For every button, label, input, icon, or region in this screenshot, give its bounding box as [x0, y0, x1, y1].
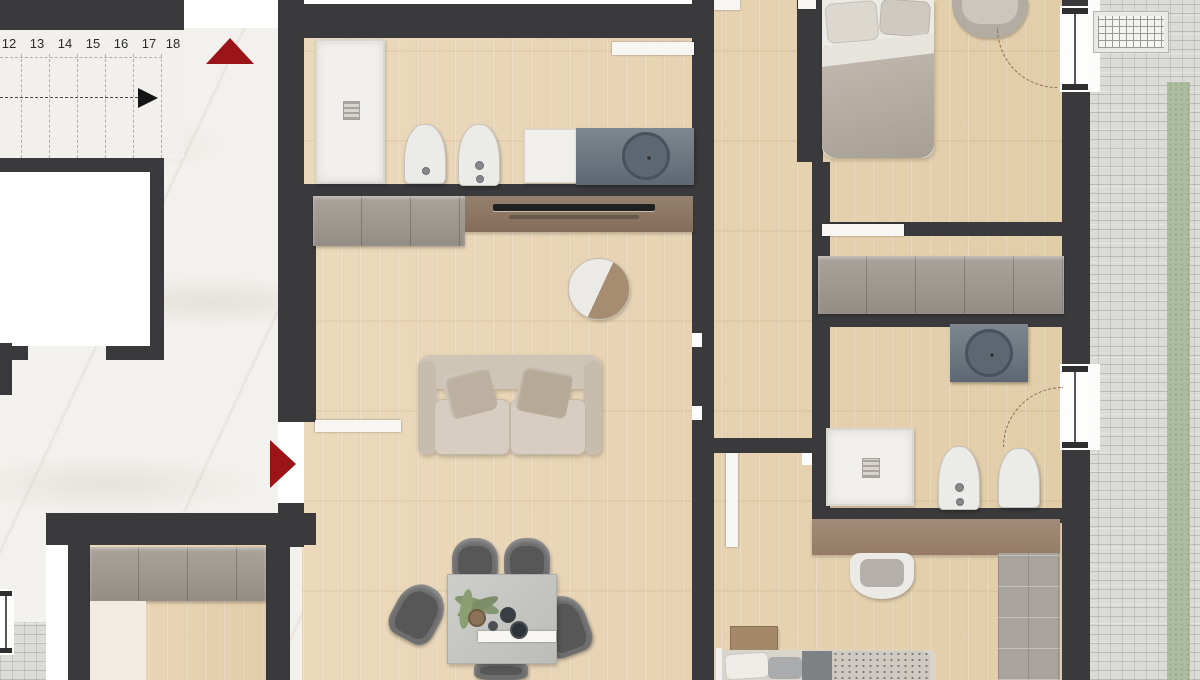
drain-dot [956, 498, 964, 506]
stair-tread-line [21, 54, 22, 158]
shower-drain [343, 101, 360, 120]
wall-top-left [0, 0, 184, 30]
bathroom-door-leaf [612, 42, 694, 55]
wall-apartment-top [278, 4, 714, 38]
bed-blanket-band [802, 651, 832, 680]
door-jamb-notch [692, 406, 702, 420]
stair-walk-line [0, 97, 138, 98]
stair-number: 13 [24, 36, 50, 51]
hall-threshold [714, 0, 740, 10]
plate [500, 607, 516, 623]
drain-dot [476, 175, 484, 183]
wall-bedroom1-left [797, 0, 823, 162]
window-frame-bar [1062, 84, 1088, 90]
bidet [458, 124, 500, 186]
vanity-counter [576, 128, 694, 185]
stair-tread-line [105, 54, 106, 158]
stair-number: 12 [0, 36, 22, 51]
tap-dot [475, 161, 484, 170]
toilet [404, 124, 446, 184]
window-right-top [1060, 6, 1092, 92]
round-basin [965, 329, 1013, 377]
toilet [998, 448, 1040, 508]
desk-shelf [812, 519, 1060, 555]
tv-screen [493, 204, 655, 211]
stair-tread-line [133, 54, 134, 158]
lower-left-floor-mat [90, 601, 146, 680]
bedroom3-door-leaf [726, 453, 738, 547]
door-jamb-notch [692, 333, 702, 347]
bidet [938, 446, 980, 510]
window-mullion [1074, 372, 1076, 442]
bed-pillow [879, 0, 931, 38]
entry-arrow-icon [270, 440, 296, 488]
closet-wardrobe [818, 256, 1064, 314]
shower-tray [826, 428, 914, 506]
stair-tread-line [77, 54, 78, 158]
window-frame-bar [0, 648, 12, 653]
stair-number: 15 [80, 36, 106, 51]
stair-tread-line [49, 54, 50, 158]
closet-threshold [822, 224, 904, 236]
tv-media-wall [465, 196, 693, 232]
stairs-up-arrow-icon [206, 38, 254, 64]
tap-dot [955, 483, 964, 492]
flush-dot [422, 167, 430, 175]
bed-blanket-pattern [832, 651, 930, 680]
window-left-edge [0, 589, 14, 655]
bathroom-cabinet [524, 129, 578, 183]
staircase: 12 13 14 15 16 17 18 [0, 28, 184, 158]
stair-number: 18 [160, 36, 186, 51]
plant-pot [468, 609, 486, 627]
desk-chair [850, 553, 914, 599]
sofa [418, 355, 602, 459]
shower-drain [862, 458, 880, 478]
window-frame-bar [1062, 442, 1088, 448]
tv-shadow [509, 215, 639, 219]
desk-chair-seat [860, 559, 904, 587]
elevator-wall-right [150, 158, 164, 360]
hall-threshold [798, 0, 816, 9]
lower-left-wardrobe [90, 547, 266, 601]
entry-door-leaf [315, 420, 401, 432]
stair-grid-line [0, 57, 162, 58]
tap-dot [989, 352, 995, 358]
floor-plan: 12 13 14 15 16 17 18 [0, 0, 1200, 680]
bed-pillow [824, 0, 879, 44]
bed-double [822, 0, 934, 158]
wall-bedroom3-top-stub [712, 438, 824, 453]
elevator-cabin [0, 172, 150, 346]
stair-number: 16 [108, 36, 134, 51]
elevator-wall-bottom-right [106, 346, 164, 360]
walk-direction-arrow-icon [138, 88, 158, 108]
shower-tray [315, 39, 385, 184]
elevator-wall-top [0, 158, 164, 172]
bed-pillow [724, 651, 770, 680]
stair-number: 14 [52, 36, 78, 51]
bed-headboard-edge [716, 648, 722, 680]
wall-apartment-left-upper [278, 0, 304, 422]
vanity-counter [950, 324, 1028, 382]
wall-left-edge-stub [0, 343, 12, 395]
grass-strip [1167, 82, 1190, 680]
lightwell-gap [46, 545, 68, 680]
bed-bottom [716, 648, 936, 680]
round-basin [622, 132, 670, 180]
drain-grate [1094, 12, 1168, 52]
tap-dot [646, 155, 652, 161]
armchair-seat [962, 0, 1018, 24]
window-mullion [5, 596, 7, 648]
round-mirror-decor [568, 258, 630, 320]
bedroom-rug [998, 553, 1060, 680]
window-right-middle [1060, 364, 1092, 450]
wall-lower-left-band [46, 513, 316, 545]
wall-exterior-right [1062, 0, 1090, 680]
window-mullion [1074, 14, 1076, 84]
wall-lower-right-vertical [266, 545, 290, 680]
wall-lower-left-vertical [68, 545, 90, 680]
bed-pillow [768, 657, 802, 679]
dining-table [447, 574, 557, 664]
stair-number: 17 [136, 36, 162, 51]
plate [488, 621, 498, 631]
living-wardrobe [313, 196, 465, 246]
stair-tread-line [161, 54, 162, 158]
exterior-strip-top [278, 0, 714, 4]
plate [510, 621, 528, 639]
sofa-pillow [514, 364, 574, 419]
sofa-arm-right [584, 361, 602, 455]
